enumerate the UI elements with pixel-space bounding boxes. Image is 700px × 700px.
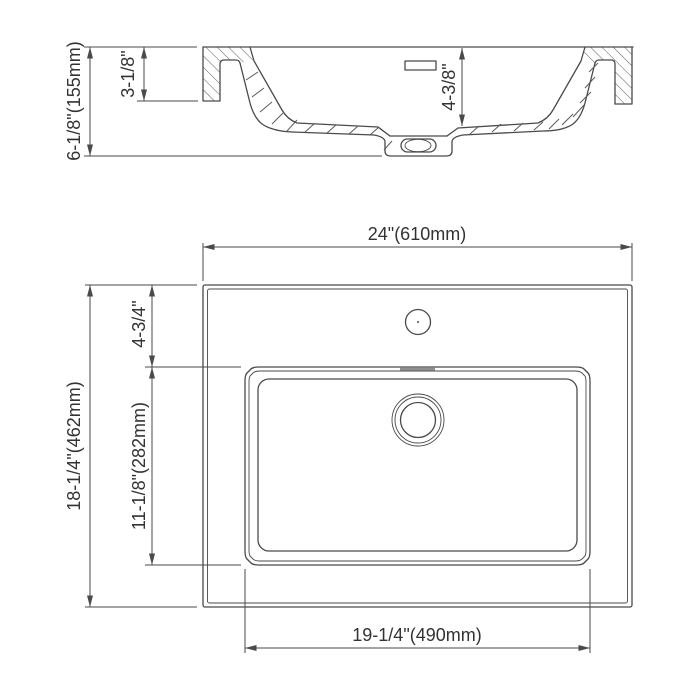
dim-bowl-depth: 4-3/8" xyxy=(439,48,462,126)
faucet-hole-center-mark xyxy=(417,321,419,323)
sink-technical-drawing: 6-1/8"(155mm) 3-1/8" 4-3/8" xyxy=(0,0,700,700)
basin-inner-surface-left xyxy=(250,47,390,136)
bowl-bottom-edge xyxy=(258,379,577,551)
side-section-view: 6-1/8"(155mm) 3-1/8" 4-3/8" xyxy=(64,41,633,160)
dim-bowl-offset-label: 4-3/4" xyxy=(129,300,149,347)
dim-bowl-width-label: 19-1/4"(490mm) xyxy=(352,625,481,645)
basin-rim-inner xyxy=(249,371,586,561)
basin-outer-surface xyxy=(240,63,595,156)
drawing-svg: 6-1/8"(155mm) 3-1/8" 4-3/8" xyxy=(0,0,700,700)
dim-overall-width-label: 24"(610mm) xyxy=(368,224,466,244)
dim-overall-height-label: 6-1/8"(155mm) xyxy=(64,41,84,160)
dim-deck-edge-height-label: 3-1/8" xyxy=(118,50,138,97)
right-edge-section-hatch xyxy=(582,47,632,104)
dim-overall-width: 24"(610mm) xyxy=(203,224,632,281)
dim-bowl-width: 19-1/4"(490mm) xyxy=(245,569,590,653)
plan-view: 24"(610mm) 18-1/4"(462mm) 4-3/4" 11-1/8"… xyxy=(64,224,632,653)
dim-bowl-offset: 4-3/4" xyxy=(129,285,241,367)
dim-bowl-length: 11-1/8"(282mm) xyxy=(129,367,241,565)
dim-deck-edge-height: 3-1/8" xyxy=(118,47,198,101)
section-hatch-ticks xyxy=(246,63,598,150)
drain-hole xyxy=(392,394,444,446)
dim-bowl-depth-label: 4-3/8" xyxy=(439,63,459,110)
dim-overall-depth-label: 18-1/4"(462mm) xyxy=(64,381,84,510)
drain-pipe xyxy=(405,139,431,151)
left-groove-outline xyxy=(220,60,240,101)
overflow-slot xyxy=(400,368,435,371)
dim-bowl-length-label: 11-1/8"(282mm) xyxy=(129,402,149,530)
overflow-hole-section xyxy=(405,61,436,70)
left-edge-section-hatch xyxy=(203,47,253,101)
right-groove-outline xyxy=(595,60,615,104)
